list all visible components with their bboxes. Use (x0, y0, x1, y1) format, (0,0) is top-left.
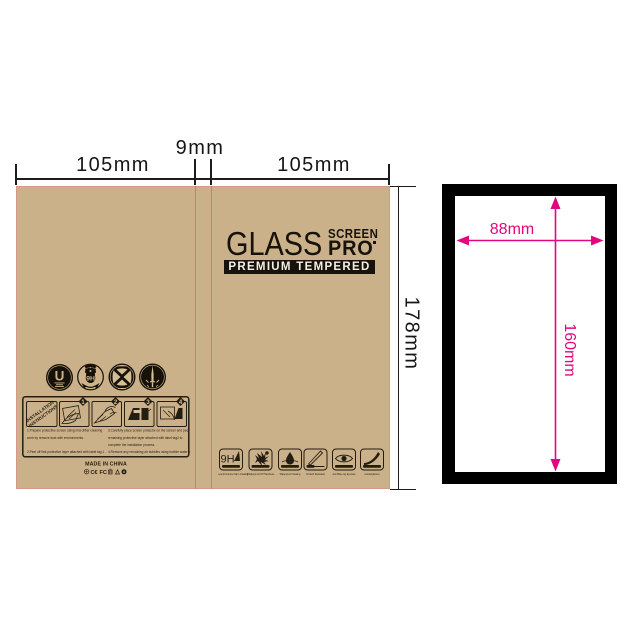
svg-text:2.Peel off first protective la: 2.Peel off first protective layer attach… (27, 450, 106, 454)
svg-text:3.Carefully place screen prote: 3.Carefully place screen protector on th… (108, 429, 190, 433)
svg-text:9H: 9H (86, 375, 95, 382)
svg-text:Waterproof Coating: Waterproof Coating (280, 473, 301, 476)
svg-text:9H: 9H (220, 454, 234, 466)
svg-text:4.Remove any remaining air bub: 4.Remove any remaining air bubbles using… (108, 450, 190, 454)
svg-text:C€: C€ (91, 470, 99, 476)
svg-text:Scratch Resistant: Scratch Resistant (306, 473, 325, 476)
svg-text:Anti Blue-ray Eyecare: Anti Blue-ray Eyecare (332, 473, 356, 476)
svg-text:Anti-Explosion: Anti-Explosion (364, 473, 380, 476)
svg-text:High-performance Nano Coating: High-performance Nano Coating (218, 473, 249, 476)
svg-text:complete the installation proc: complete the installation process. (108, 443, 155, 447)
svg-text:FC: FC (100, 470, 107, 476)
svg-text:1.Prepare protective screen us: 1.Prepare protective screen using microf… (27, 429, 103, 433)
svg-text:Shatterproof 9H Hardness: Shatterproof 9H Hardness (247, 473, 276, 476)
svg-text:remaining protective layer at: remaining protective layer attached with… (108, 436, 183, 440)
svg-text:work by remove dust with envir: work by remove dust with environments. (27, 436, 84, 440)
svg-text:U: U (55, 369, 65, 384)
